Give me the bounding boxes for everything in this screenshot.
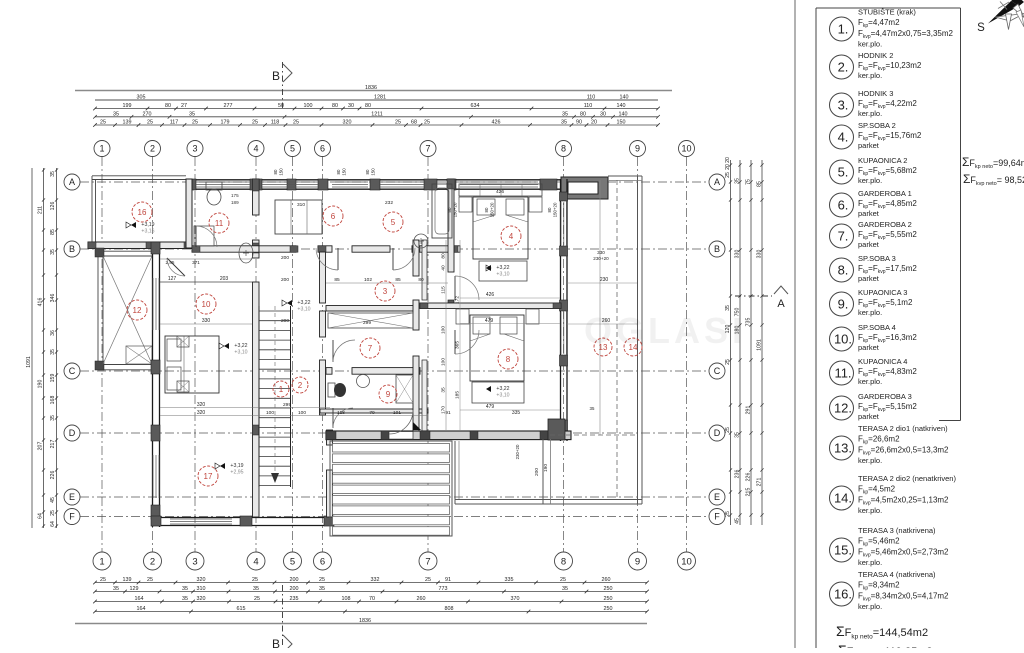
svg-text:150: 150 [279, 168, 284, 176]
svg-text:129: 129 [130, 586, 139, 592]
svg-text:100: 100 [266, 410, 274, 416]
svg-text:7: 7 [368, 344, 373, 353]
svg-text:ker.plo.: ker.plo. [858, 456, 882, 465]
svg-text:332: 332 [371, 577, 380, 583]
svg-text:310: 310 [197, 586, 206, 592]
svg-text:15.: 15. [834, 543, 852, 558]
svg-text:25: 25 [725, 172, 731, 178]
svg-text:25: 25 [319, 577, 325, 583]
svg-text:6: 6 [320, 144, 325, 154]
svg-text:320: 320 [197, 596, 206, 602]
svg-text:9: 9 [635, 144, 640, 154]
svg-text:150: 150 [342, 168, 347, 176]
svg-text:426: 426 [492, 120, 501, 126]
svg-text:7.: 7. [838, 229, 849, 244]
svg-text:A: A [714, 177, 720, 187]
svg-text:102: 102 [364, 277, 372, 283]
svg-text:101: 101 [393, 410, 401, 416]
svg-text:1091: 1091 [26, 356, 32, 368]
svg-text:25: 25 [395, 120, 401, 126]
svg-text:25: 25 [560, 577, 566, 583]
svg-text:634: 634 [471, 103, 480, 109]
svg-text:110: 110 [587, 95, 596, 101]
svg-text:11.: 11. [834, 366, 851, 381]
svg-text:17: 17 [204, 472, 213, 481]
svg-text:35: 35 [319, 586, 325, 592]
svg-text:C: C [714, 366, 721, 376]
svg-text:235: 235 [290, 596, 299, 602]
svg-text:277: 277 [224, 103, 233, 109]
svg-text:36: 36 [50, 330, 56, 336]
svg-text:9: 9 [635, 556, 640, 567]
svg-text:F: F [69, 512, 75, 522]
svg-text:70: 70 [369, 410, 375, 416]
svg-text:270: 270 [143, 111, 152, 117]
svg-text:615: 615 [237, 606, 246, 612]
svg-text:+3,19: +3,19 [230, 463, 243, 469]
svg-text:ker.plo.: ker.plo. [858, 40, 882, 49]
svg-text:+3,10: +3,10 [234, 350, 247, 356]
svg-text:35: 35 [50, 415, 56, 421]
svg-text:KUPAONICA 4: KUPAONICA 4 [858, 357, 907, 366]
svg-text:115: 115 [441, 286, 447, 294]
svg-text:20: 20 [725, 157, 731, 163]
svg-text:8: 8 [506, 355, 511, 364]
svg-text:30: 30 [348, 103, 354, 109]
svg-text:299: 299 [363, 320, 371, 326]
svg-text:TERASA 2 dio1 (natkriven): TERASA 2 dio1 (natkriven) [858, 424, 948, 433]
svg-text:100: 100 [298, 410, 306, 416]
svg-text:416: 416 [38, 298, 44, 307]
svg-text:140: 140 [620, 95, 629, 101]
svg-text:35: 35 [561, 120, 567, 126]
svg-text:211: 211 [38, 206, 44, 214]
svg-text:E: E [714, 492, 720, 502]
svg-text:+3,10: +3,10 [297, 307, 310, 313]
svg-text:parket: parket [858, 274, 880, 283]
svg-text:7: 7 [425, 144, 430, 154]
svg-text:8: 8 [561, 144, 566, 154]
svg-text:25: 25 [725, 427, 731, 433]
svg-text:200: 200 [534, 468, 540, 476]
svg-text:80: 80 [484, 207, 489, 212]
svg-text:479: 479 [485, 318, 494, 324]
svg-text:SP.SOBA 2: SP.SOBA 2 [858, 121, 896, 130]
svg-text:80: 80 [365, 103, 371, 109]
svg-text:STUBIŠTE (krak): STUBIŠTE (krak) [858, 8, 916, 17]
svg-text:B: B [272, 637, 280, 648]
svg-text:B: B [69, 244, 75, 254]
svg-text:100: 100 [304, 103, 313, 109]
svg-text:27: 27 [181, 103, 187, 109]
svg-text:SP.SOBA 3: SP.SOBA 3 [858, 254, 896, 263]
svg-text:479: 479 [486, 404, 495, 410]
svg-text:C: C [69, 366, 76, 376]
svg-text:D: D [69, 428, 76, 438]
svg-text:+3,19: +3,19 [141, 222, 154, 228]
svg-text:426: 426 [486, 292, 495, 298]
svg-text:35: 35 [562, 586, 568, 592]
svg-text:9.: 9. [838, 297, 849, 312]
svg-text:2: 2 [150, 556, 155, 567]
svg-text:164: 164 [135, 596, 144, 602]
svg-text:118: 118 [271, 120, 280, 126]
svg-text:200: 200 [281, 277, 289, 283]
svg-text:+3,22: +3,22 [297, 300, 310, 306]
svg-text:8.: 8. [838, 263, 849, 278]
svg-text:118: 118 [337, 410, 345, 416]
svg-text:3: 3 [383, 287, 388, 296]
svg-text:1211: 1211 [371, 111, 383, 117]
svg-text:16: 16 [138, 208, 147, 217]
svg-text:85: 85 [50, 229, 56, 235]
svg-text:35: 35 [441, 387, 447, 393]
svg-text:4.: 4. [838, 130, 849, 145]
svg-text:35: 35 [562, 111, 568, 117]
svg-text:80: 80 [336, 169, 341, 174]
svg-text:207: 207 [38, 442, 44, 451]
svg-text:80: 80 [332, 103, 338, 109]
svg-text:150: 150 [617, 120, 626, 126]
svg-text:1.: 1. [838, 22, 849, 37]
svg-text:271: 271 [757, 478, 763, 487]
svg-text:80: 80 [447, 207, 452, 212]
svg-text:85: 85 [757, 181, 763, 187]
svg-text:+2,95: +2,95 [230, 470, 243, 476]
svg-text:230+20: 230+20 [515, 444, 520, 459]
svg-text:25: 25 [100, 120, 106, 126]
svg-text:25: 25 [424, 120, 430, 126]
svg-text:7: 7 [425, 556, 430, 567]
svg-text:TERASA 4 (natkrivena): TERASA 4 (natkrivena) [858, 570, 936, 579]
svg-text:A: A [777, 298, 785, 310]
svg-text:371: 371 [192, 260, 200, 265]
svg-text:320: 320 [197, 402, 206, 408]
svg-text:189: 189 [231, 200, 239, 205]
svg-text:5: 5 [290, 556, 295, 567]
svg-text:80: 80 [365, 169, 370, 174]
svg-text:TERASA 3 (natkrivena): TERASA 3 (natkrivena) [858, 526, 936, 535]
svg-text:5.: 5. [838, 165, 849, 180]
svg-text:4: 4 [509, 232, 514, 241]
svg-text:25: 25 [425, 577, 431, 583]
svg-text:150+20: 150+20 [490, 202, 495, 217]
svg-text:126: 126 [50, 202, 56, 211]
svg-text:35: 35 [113, 111, 119, 117]
svg-text:+3,16: +3,16 [141, 229, 154, 235]
svg-text:A: A [69, 177, 75, 187]
svg-text:139: 139 [123, 577, 132, 583]
svg-text:3: 3 [192, 556, 197, 567]
svg-text:9: 9 [386, 390, 391, 399]
svg-text:299: 299 [283, 402, 291, 408]
svg-text:ker.plo.: ker.plo. [858, 308, 882, 317]
svg-text:1281: 1281 [374, 95, 386, 101]
svg-text:ker.plo.: ker.plo. [858, 602, 882, 611]
svg-text:426: 426 [496, 189, 504, 195]
svg-text:320: 320 [343, 120, 352, 126]
svg-text:13.: 13. [834, 441, 852, 456]
svg-text:8: 8 [561, 556, 566, 567]
svg-text:35: 35 [50, 249, 56, 255]
svg-text:108: 108 [342, 596, 351, 602]
svg-text:25: 25 [254, 596, 260, 602]
svg-text:25: 25 [725, 511, 731, 517]
svg-text:150: 150 [371, 168, 376, 176]
svg-text:64: 64 [50, 521, 56, 527]
svg-text:200: 200 [290, 577, 299, 583]
svg-text:ker.plo.: ker.plo. [858, 558, 882, 567]
svg-text:5: 5 [391, 218, 396, 227]
svg-text:80: 80 [165, 103, 171, 109]
svg-text:100: 100 [441, 326, 447, 334]
svg-text:70: 70 [369, 596, 375, 602]
svg-text:S: S [977, 22, 985, 34]
svg-text:TERASA 2 dio2 (nenatkriven): TERASA 2 dio2 (nenatkriven) [858, 474, 956, 483]
svg-text:OGLASI: OGLASI [584, 310, 746, 351]
svg-text:150+20: 150+20 [453, 202, 458, 217]
svg-text:1091: 1091 [757, 339, 763, 351]
svg-text:260: 260 [417, 596, 426, 602]
svg-text:14.: 14. [834, 491, 852, 506]
svg-text:+3,22: +3,22 [234, 343, 247, 349]
svg-text:B: B [714, 244, 720, 254]
svg-text:90: 90 [576, 120, 582, 126]
svg-text:20: 20 [725, 164, 731, 170]
svg-text:25: 25 [725, 359, 731, 365]
svg-text:172: 172 [455, 296, 461, 304]
svg-text:45: 45 [50, 497, 56, 503]
svg-text:35: 35 [590, 406, 595, 411]
svg-text:40: 40 [441, 265, 447, 271]
svg-text:GARDEROBA 2: GARDEROBA 2 [858, 220, 912, 229]
svg-text:ker.plo.: ker.plo. [858, 109, 882, 118]
svg-text:11: 11 [215, 219, 224, 228]
svg-text:4: 4 [253, 556, 258, 567]
svg-text:168: 168 [50, 396, 56, 405]
svg-text:35: 35 [113, 586, 119, 592]
svg-text:+3,22: +3,22 [496, 265, 509, 271]
svg-text:164: 164 [137, 606, 146, 612]
svg-text:179: 179 [221, 120, 230, 126]
svg-text:ker.plo.: ker.plo. [858, 176, 882, 185]
svg-text:KUPAONICA 3: KUPAONICA 3 [858, 288, 907, 297]
svg-text:parket: parket [858, 240, 880, 249]
svg-text:1836: 1836 [359, 618, 371, 624]
svg-text:25: 25 [252, 120, 258, 126]
svg-text:260: 260 [602, 577, 611, 583]
svg-text:80: 80 [547, 207, 552, 212]
svg-text:1: 1 [99, 144, 104, 154]
svg-text:185: 185 [455, 391, 461, 399]
svg-text:200: 200 [281, 255, 289, 261]
svg-text:320: 320 [197, 410, 206, 416]
svg-text:159: 159 [50, 374, 56, 383]
svg-text:80: 80 [580, 111, 586, 117]
svg-text:80: 80 [273, 169, 278, 174]
svg-text:10: 10 [681, 144, 691, 154]
svg-text:100: 100 [441, 358, 447, 366]
svg-text:1836: 1836 [365, 85, 377, 91]
svg-text:226: 226 [746, 473, 752, 482]
svg-text:35: 35 [735, 432, 741, 438]
svg-text:250: 250 [604, 586, 613, 592]
svg-text:35: 35 [50, 349, 56, 355]
svg-text:GARDEROBA 3: GARDEROBA 3 [858, 392, 912, 401]
svg-text:25: 25 [147, 577, 153, 583]
svg-text:parket: parket [858, 412, 880, 421]
svg-text:330: 330 [202, 318, 211, 324]
svg-text:230: 230 [600, 277, 609, 283]
svg-text:25: 25 [100, 577, 106, 583]
svg-text:30: 30 [600, 111, 606, 117]
svg-text:127: 127 [168, 276, 177, 282]
svg-text:250: 250 [604, 606, 613, 612]
svg-text:140: 140 [617, 103, 626, 109]
svg-text:KUPAONICA 2: KUPAONICA 2 [858, 156, 907, 165]
svg-text:12.: 12. [834, 401, 852, 416]
svg-text:335: 335 [505, 577, 514, 583]
svg-text:3.: 3. [838, 98, 849, 113]
svg-text:10: 10 [202, 300, 211, 309]
svg-text:25: 25 [293, 120, 299, 126]
svg-text:117: 117 [170, 120, 179, 126]
svg-text:16.: 16. [834, 587, 852, 602]
svg-text:D: D [714, 428, 721, 438]
svg-text:E: E [69, 492, 75, 502]
svg-text:217: 217 [50, 440, 56, 449]
svg-text:45: 45 [735, 518, 741, 524]
svg-text:25: 25 [192, 120, 198, 126]
svg-text:85: 85 [395, 277, 401, 283]
svg-text:305: 305 [137, 95, 146, 101]
svg-text:230+20: 230+20 [593, 256, 609, 261]
svg-text:330: 330 [597, 250, 605, 255]
svg-text:parket: parket [858, 141, 880, 150]
svg-text:80: 80 [418, 277, 424, 283]
svg-text:10.: 10. [834, 332, 852, 347]
svg-text:6: 6 [320, 556, 325, 567]
svg-text:20: 20 [591, 120, 597, 126]
svg-text:50: 50 [278, 103, 284, 109]
svg-text:ΣFkp neto=99,64m: ΣFkp neto=99,64m [962, 155, 1024, 170]
svg-text:25: 25 [252, 577, 258, 583]
svg-text:335: 335 [512, 410, 521, 416]
svg-text:110: 110 [584, 103, 593, 109]
svg-text:1: 1 [99, 556, 104, 567]
svg-text:139: 139 [123, 120, 132, 126]
svg-text:+3,10: +3,10 [496, 393, 509, 399]
svg-text:773: 773 [439, 586, 448, 592]
svg-text:35: 35 [189, 111, 195, 117]
svg-text:80: 80 [441, 253, 447, 259]
svg-text:parket: parket [858, 209, 880, 218]
svg-text:6: 6 [331, 212, 336, 221]
svg-text:35: 35 [182, 586, 188, 592]
svg-text:12: 12 [133, 306, 142, 315]
svg-text:370: 370 [511, 596, 520, 602]
svg-text:199: 199 [123, 103, 132, 109]
svg-text:808: 808 [445, 606, 454, 612]
svg-text:HODNIK 2: HODNIK 2 [858, 51, 893, 60]
svg-text:150+20: 150+20 [553, 202, 558, 217]
svg-text:4: 4 [253, 144, 258, 154]
svg-text:200: 200 [290, 586, 299, 592]
svg-text:175: 175 [231, 193, 239, 198]
svg-text:SP.SOBA 4: SP.SOBA 4 [858, 323, 896, 332]
svg-text:190: 190 [543, 464, 549, 472]
svg-text:35: 35 [182, 596, 188, 602]
svg-text:64: 64 [38, 513, 44, 519]
svg-text:35: 35 [253, 586, 259, 592]
svg-text:170: 170 [441, 406, 447, 414]
svg-text:200: 200 [281, 318, 289, 324]
svg-text:GARDEROBA 1: GARDEROBA 1 [858, 189, 912, 198]
svg-text:HODNIK 3: HODNIK 3 [858, 89, 893, 98]
svg-text:B: B [272, 69, 280, 83]
svg-text:6.: 6. [838, 198, 849, 213]
svg-text:68: 68 [411, 120, 417, 126]
svg-text:2.: 2. [838, 60, 849, 75]
svg-text:320: 320 [197, 577, 206, 583]
svg-text:25: 25 [147, 120, 153, 126]
svg-text:140: 140 [619, 111, 628, 117]
svg-text:35: 35 [50, 171, 56, 177]
svg-text:ker.plo.: ker.plo. [858, 71, 882, 80]
svg-text:35: 35 [735, 178, 741, 184]
svg-text:190: 190 [38, 380, 44, 389]
svg-text:5: 5 [290, 144, 295, 154]
svg-text:91: 91 [445, 577, 451, 583]
svg-text:365: 365 [455, 341, 461, 349]
svg-text:203: 203 [220, 276, 229, 282]
svg-text:3: 3 [192, 144, 197, 154]
svg-text:232: 232 [385, 200, 393, 206]
svg-text:85: 85 [334, 277, 340, 283]
svg-text:226: 226 [50, 471, 56, 480]
svg-text:1: 1 [279, 385, 284, 394]
svg-text:parket: parket [858, 343, 880, 352]
svg-text:ker.plo.: ker.plo. [858, 506, 882, 515]
svg-text:310: 310 [297, 202, 305, 208]
svg-text:291: 291 [746, 406, 752, 415]
svg-text:+3,22: +3,22 [496, 386, 509, 392]
svg-text:250: 250 [604, 596, 613, 602]
svg-text:2: 2 [298, 381, 303, 390]
svg-text:F: F [714, 512, 720, 522]
svg-text:+3,10: +3,10 [496, 272, 509, 278]
svg-text:10: 10 [681, 556, 692, 567]
svg-text:ker.plo.: ker.plo. [858, 377, 882, 386]
svg-text:2: 2 [150, 144, 155, 154]
